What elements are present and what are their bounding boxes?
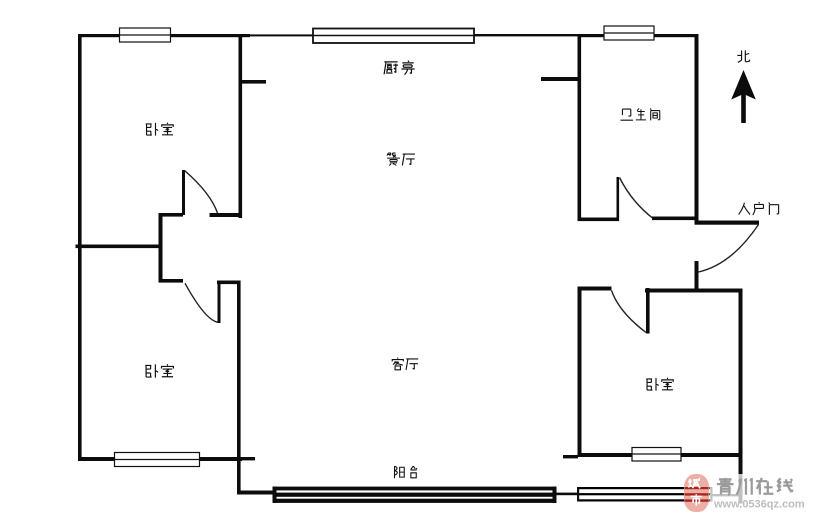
svg-text:www.0536qz.com: www.0536qz.com bbox=[713, 499, 805, 511]
